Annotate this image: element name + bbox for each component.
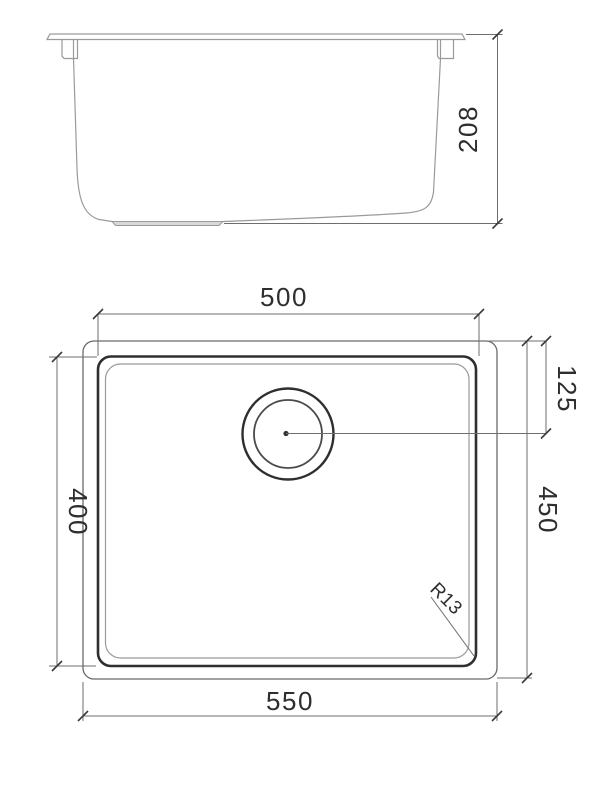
- plan-bowl-rim: [98, 357, 476, 667]
- drain: [243, 389, 547, 480]
- side-view-base-pad: [112, 222, 223, 226]
- dim-drain-offset-label: 125: [552, 365, 582, 413]
- dim-inner-length: 400: [49, 352, 97, 671]
- side-view-body-right: [223, 59, 441, 222]
- side-view-body-left: [74, 59, 113, 222]
- plan-bowl-inner: [106, 364, 470, 658]
- side-view: 208: [47, 30, 503, 229]
- dim-depth: 208: [224, 30, 503, 229]
- dim-corner-radius-label: R13: [426, 579, 467, 620]
- dim-corner-radius: R13: [426, 579, 474, 656]
- plan-view: 500 125 400: [49, 282, 582, 721]
- dim-inner-length-label: 400: [63, 488, 93, 536]
- side-view-clips: [62, 40, 454, 59]
- sink-technical-drawing: 208 500: [0, 0, 606, 800]
- dim-drain-offset: 125: [489, 336, 582, 439]
- dim-depth-label: 208: [453, 105, 483, 153]
- side-view-rim: [47, 34, 465, 40]
- drawing-canvas: 208 500: [0, 0, 606, 800]
- dim-inner-width: 500: [93, 282, 484, 356]
- dim-inner-width-label: 500: [260, 282, 308, 312]
- plan-outer-edge: [83, 341, 497, 679]
- mounting-clip-left: [62, 40, 78, 59]
- dim-outer-width: 550: [78, 682, 502, 721]
- dim-outer-length-label: 450: [533, 486, 563, 534]
- dim-outer-width-label: 550: [266, 686, 314, 716]
